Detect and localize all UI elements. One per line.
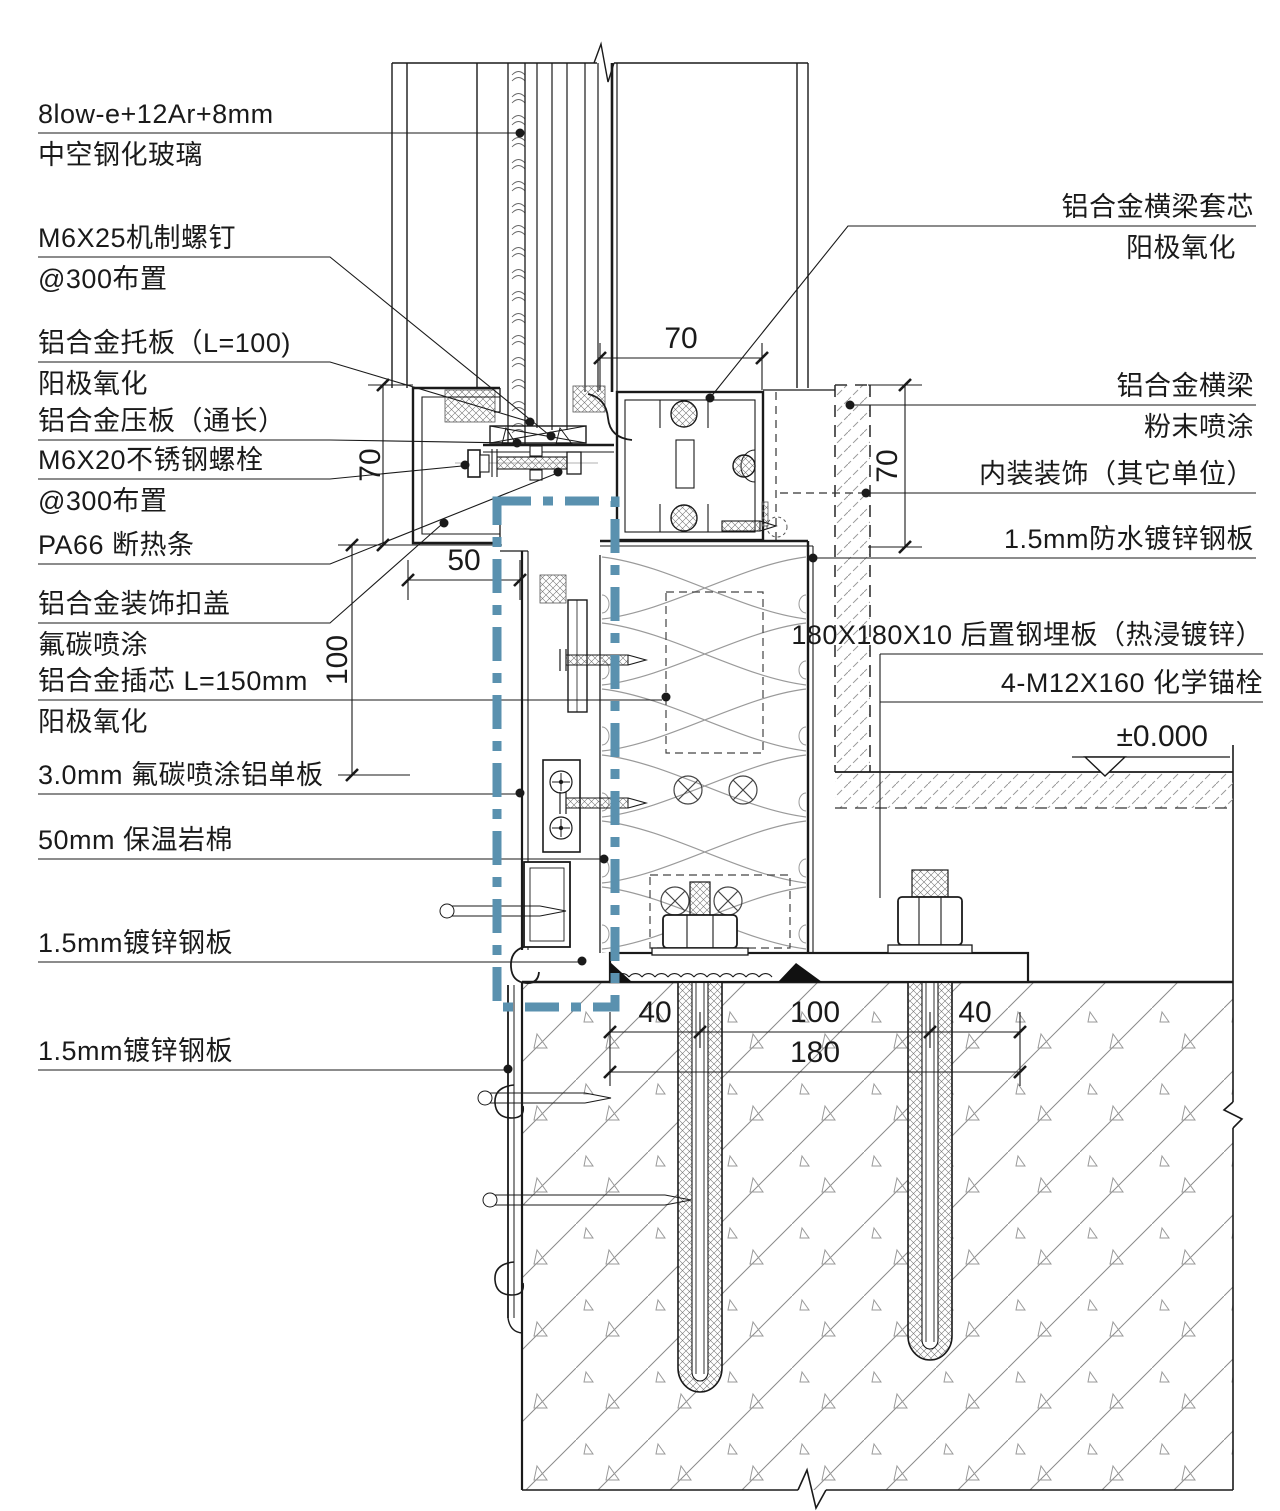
label-core-insert-2: 阳极氧化 xyxy=(38,706,148,738)
bottom-closure xyxy=(524,862,570,947)
dim-edge-right: 40 xyxy=(945,998,1005,1028)
label-cover-cap-2: 氟碳喷涂 xyxy=(38,629,148,661)
label-embed-plate: 180X180X10 后置钢埋板（热浸镀锌） xyxy=(791,619,1263,651)
transom-profile xyxy=(617,392,787,540)
bracket-screw-2 xyxy=(550,817,572,839)
sheet-clip-1 xyxy=(495,1085,523,1118)
bolt-head xyxy=(468,450,480,477)
dim-transom-height-right: 70 xyxy=(873,436,903,496)
label-thermal-break: PA66 断热条 xyxy=(38,529,195,561)
dim-cover-width: 50 xyxy=(434,546,494,576)
label-transom-1: 铝合金横梁 xyxy=(1117,370,1255,402)
label-interior-finish: 内装装饰（其它单位） xyxy=(979,458,1254,490)
screw-boss-right xyxy=(733,455,755,477)
label-alu-panel: 3.0mm 氟碳喷涂铝单板 xyxy=(38,759,324,791)
bracket-screw-1 xyxy=(550,771,572,793)
screw-boss-top xyxy=(671,401,697,427)
label-rockwool: 50mm 保温岩棉 xyxy=(38,824,233,856)
label-galv-sheet-2: 1.5mm镀锌钢板 xyxy=(38,1035,233,1067)
label-core-insert-1: 铝合金插芯 L=150mm xyxy=(38,665,308,697)
dim-anchor-spacing: 100 xyxy=(785,998,845,1028)
label-support-plate-1: 铝合金托板（L=100) xyxy=(38,327,291,359)
dim-edge-left: 40 xyxy=(625,998,685,1028)
label-galv-sheet-1: 1.5mm镀锌钢板 xyxy=(38,927,233,959)
label-ss-bolt-1: M6X20不锈钢螺栓 xyxy=(38,444,264,476)
label-ss-bolt-2: @300布置 xyxy=(38,485,167,517)
glass-pane-outer xyxy=(508,63,525,445)
label-transom-2: 粉末喷涂 xyxy=(1144,411,1254,443)
label-machine-screw-1: M6X25机制螺钉 xyxy=(38,222,236,254)
interior-wall-lines xyxy=(797,63,808,388)
label-insulated-glass-1: 8low-e+12Ar+8mm xyxy=(38,98,274,130)
dim-transom-height-left: 70 xyxy=(356,435,386,495)
base-plate xyxy=(610,953,1028,982)
label-machine-screw-2: @300布置 xyxy=(38,263,167,295)
label-waterproof-sheet: 1.5mm防水镀锌钢板 xyxy=(1004,523,1254,555)
pressure-plate-assembly xyxy=(445,386,632,480)
screw-boss-bottom xyxy=(671,505,697,531)
panel-bottom-hook xyxy=(511,947,539,983)
label-transom-core-1: 铝合金横梁套芯 xyxy=(1062,191,1255,223)
label-chem-anchor: 4-M12X160 化学锚栓 xyxy=(1001,667,1263,699)
bolt-shank xyxy=(497,457,567,469)
curtain-wall-detail-drawing: 8low-e+12Ar+8mm 中空钢化玻璃 M6X25机制螺钉 @300布置 … xyxy=(0,0,1280,1511)
label-pressure-plate: 铝合金压板（通长） xyxy=(38,405,286,437)
label-support-plate-2: 阳极氧化 xyxy=(38,368,148,400)
label-transom-core-2: 阳极氧化 xyxy=(1126,232,1236,264)
dim-plate-width: 180 xyxy=(785,1038,845,1068)
label-cover-cap-1: 铝合金装饰扣盖 xyxy=(38,588,231,620)
dim-transom-width: 70 xyxy=(651,324,711,354)
sheet-clip-2 xyxy=(495,1262,523,1295)
side-screw xyxy=(722,521,760,531)
dim-panel-offset: 100 xyxy=(323,630,353,690)
anchor-nut-right xyxy=(888,870,972,953)
level-mark-text: ±0.000 xyxy=(1038,720,1208,754)
label-insulated-glass-2: 中空钢化玻璃 xyxy=(38,139,203,171)
